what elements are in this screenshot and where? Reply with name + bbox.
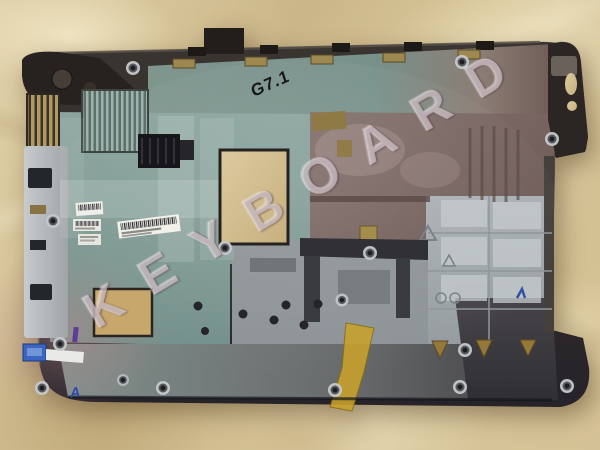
hinge-round-hole <box>567 101 577 111</box>
zif-connector-latch <box>27 348 42 356</box>
card-slot-cutout <box>30 284 52 300</box>
hinge-oval-hole <box>565 73 577 95</box>
bay-step <box>250 258 296 272</box>
barcode-sticker <box>75 201 103 216</box>
case-body <box>0 28 589 415</box>
audio-port-cutout <box>30 240 46 250</box>
hinge-gear <box>52 69 72 89</box>
wear-blotch <box>400 152 460 188</box>
top-edge-tab <box>204 28 244 54</box>
hinge-bracket-right <box>551 56 577 76</box>
photo-scene: KEYBOARD G7.1 A <box>0 0 600 450</box>
laptop-bottom-case <box>0 0 600 450</box>
heatsink-mount <box>180 140 194 160</box>
barcode-sticker <box>73 219 101 231</box>
drive-bay-post <box>396 258 410 318</box>
blue-letter-mark: A <box>69 384 81 401</box>
service-sticker <box>78 234 101 245</box>
copper-tape-patch <box>311 111 346 131</box>
wear-blotch <box>315 124 405 176</box>
speaker-opening <box>94 289 152 336</box>
drive-bay-post <box>304 256 320 322</box>
molded-ledge <box>310 196 430 202</box>
copper-tape-patch <box>337 140 352 157</box>
port-contact-spring <box>30 205 46 214</box>
ram-door-opening <box>220 150 288 244</box>
usb-port-cutout <box>28 168 52 188</box>
